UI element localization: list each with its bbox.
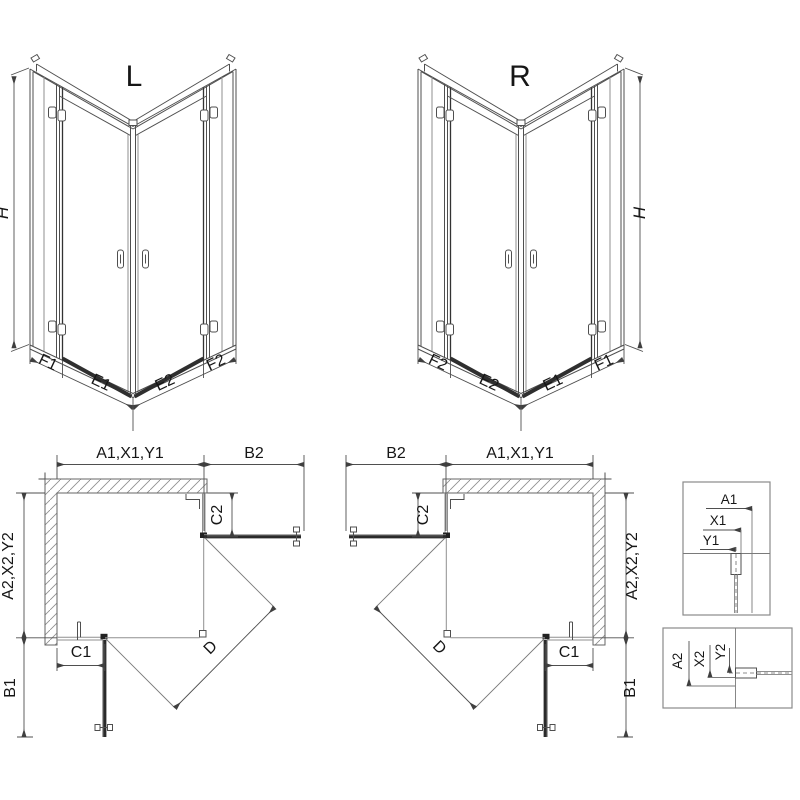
detail-box-a2x2y2: A2 X2 Y2: [663, 628, 792, 708]
technical-drawing-page: L H F1 E1 E2 F2 R H F2 E2 E1 F1 A1,X1,Y1…: [0, 0, 800, 800]
dim-label-d-left-plan: D: [201, 638, 221, 658]
dim-label-d-right-plan: D: [429, 638, 449, 658]
shower-enclosure-drawing: L H F1 E1 E2 F2 R H F2 E2 E1 F1 A1,X1,Y1…: [0, 0, 800, 800]
detail-label-x2: X2: [692, 651, 707, 668]
dim-label-c2-right-plan: C2: [415, 505, 432, 526]
dim-label-b1-right-plan: B1: [622, 678, 639, 698]
detail-label-y1: Y1: [703, 533, 720, 548]
dim-label-b2-left-plan: B2: [244, 445, 264, 462]
right-plan-view: B2 A1,X1,Y1 C2 A2,X2,Y2 C1 B1 D: [346, 445, 641, 737]
detail-label-a1: A1: [721, 492, 738, 507]
dim-label-a2x2y2-left-plan: A2,X2,Y2: [0, 532, 17, 600]
detail-box-a1x1y1: A1 X1 Y1: [683, 482, 770, 615]
dim-label-a1x1y1-right-plan: A1,X1,Y1: [486, 445, 554, 462]
left-plan-linework: [16, 455, 304, 737]
dim-label-a1x1y1-left-plan: A1,X1,Y1: [96, 445, 164, 462]
variant-label-left: L: [126, 60, 143, 93]
detail-label-a2: A2: [670, 653, 685, 670]
left-plan-view: A1,X1,Y1 B2 C2 A2,X2,Y2 C1 B1 D: [0, 445, 304, 737]
right-plan-linework: [346, 455, 634, 737]
dim-label-c1-right-plan: C1: [559, 644, 580, 661]
left-3d-linework: [11, 55, 236, 432]
variant-label-right: R: [509, 60, 531, 93]
dim-label-b1-left-plan: B1: [2, 678, 19, 698]
detail-label-y2: Y2: [713, 644, 728, 661]
height-dim-label-right: H: [630, 206, 649, 219]
left-3d-view: L H F1 E1 E2 F2: [0, 55, 236, 432]
right-3d-linework: [418, 55, 643, 432]
right-3d-view: R H F2 E2 E1 F1: [418, 55, 649, 432]
wall-section-left-plan: [45, 479, 207, 645]
dim-label-b2-right-plan: B2: [386, 445, 406, 462]
dim-label-c2-left-plan: C2: [209, 505, 226, 526]
detail-label-x1: X1: [710, 513, 727, 528]
dim-label-c1-left-plan: C1: [71, 644, 92, 661]
dim-label-a2x2y2-right-plan: A2,X2,Y2: [624, 532, 641, 600]
wall-section-right-plan: [443, 479, 605, 645]
height-dim-label-left: H: [0, 206, 12, 219]
